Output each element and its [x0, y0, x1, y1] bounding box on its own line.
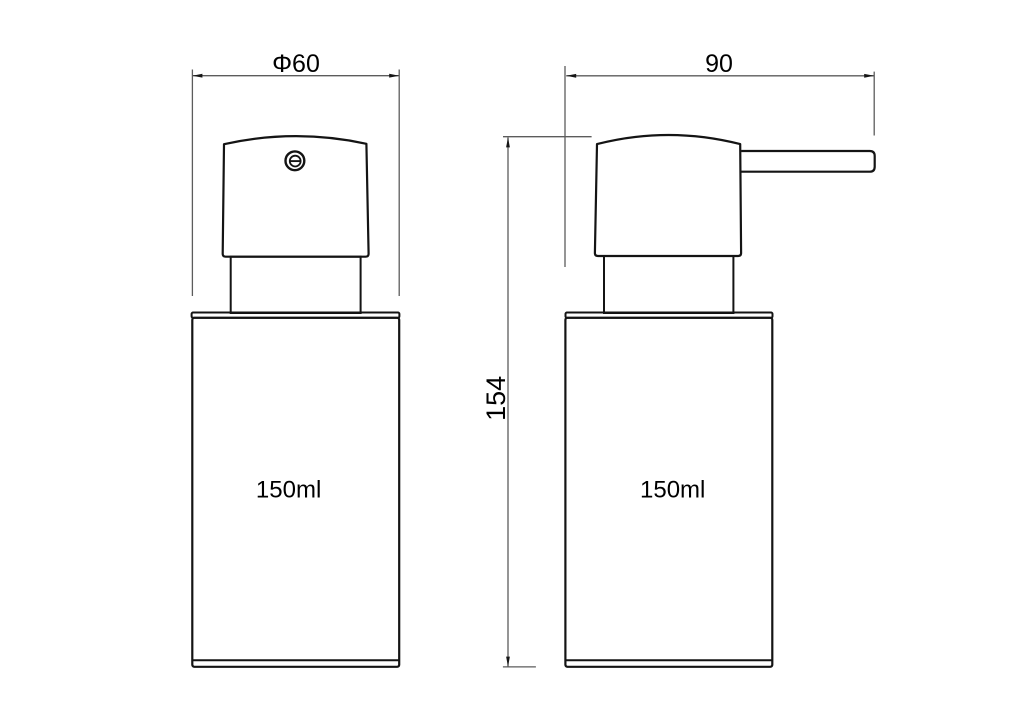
svg-text:150ml: 150ml [256, 477, 321, 504]
svg-text:150ml: 150ml [640, 477, 705, 504]
svg-text:154: 154 [481, 376, 511, 421]
svg-text:Φ60: Φ60 [272, 50, 320, 78]
svg-text:90: 90 [705, 50, 733, 78]
